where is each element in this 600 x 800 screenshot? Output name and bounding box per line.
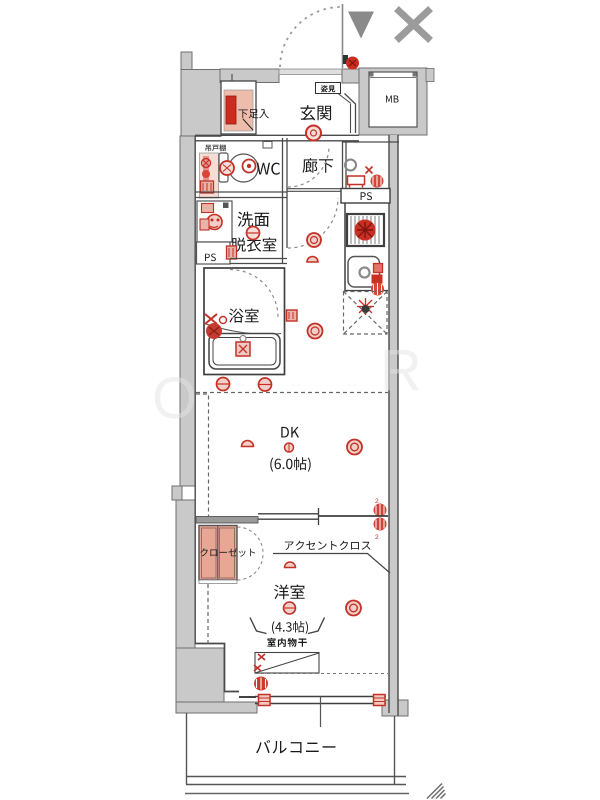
- svg-text:2: 2: [375, 534, 379, 541]
- svg-text:2: 2: [375, 498, 379, 505]
- svg-text:R: R: [380, 338, 422, 403]
- svg-text:O: O: [152, 366, 197, 431]
